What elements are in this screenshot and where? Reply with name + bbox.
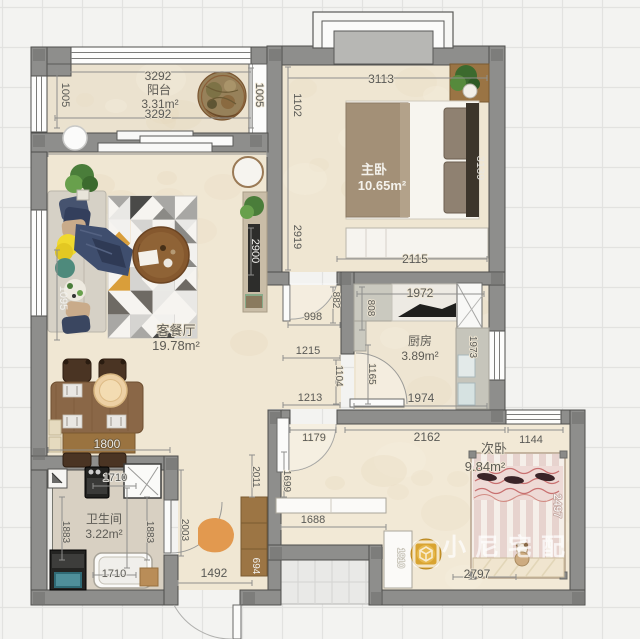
svg-text:客餐厅: 客餐厅	[156, 323, 195, 338]
svg-text:2115: 2115	[402, 252, 428, 266]
svg-text:1973: 1973	[467, 336, 478, 359]
svg-text:1699: 1699	[281, 470, 292, 493]
svg-text:1710: 1710	[102, 568, 126, 580]
svg-text:2797: 2797	[464, 567, 491, 581]
svg-text:1165: 1165	[366, 363, 377, 385]
svg-text:1005: 1005	[253, 83, 265, 107]
svg-text:9.84m²: 9.84m²	[465, 459, 506, 474]
svg-text:1215: 1215	[296, 345, 320, 357]
svg-text:厨房: 厨房	[408, 333, 432, 348]
svg-text:主卧: 主卧	[361, 162, 387, 177]
svg-text:1095: 1095	[57, 286, 69, 310]
svg-text:1710: 1710	[103, 472, 127, 484]
svg-text:1005: 1005	[59, 83, 71, 107]
svg-text:1883: 1883	[144, 521, 155, 544]
svg-text:1492: 1492	[201, 566, 228, 580]
svg-text:19.78m²: 19.78m²	[152, 338, 200, 353]
svg-text:小尼宅配: 小尼宅配	[442, 533, 574, 561]
svg-text:2497: 2497	[551, 494, 563, 518]
svg-text:1102: 1102	[291, 93, 303, 117]
svg-text:1144: 1144	[519, 434, 543, 446]
svg-text:1972: 1972	[407, 286, 434, 300]
svg-text:2003: 2003	[179, 519, 190, 542]
svg-text:1213: 1213	[298, 392, 322, 404]
svg-text:808: 808	[365, 300, 376, 317]
svg-text:1688: 1688	[301, 514, 325, 526]
svg-text:1104: 1104	[333, 365, 344, 387]
svg-text:998: 998	[304, 311, 322, 323]
svg-text:2162: 2162	[414, 430, 441, 444]
svg-text:1974: 1974	[408, 391, 435, 405]
svg-text:1810: 1810	[396, 548, 406, 568]
svg-text:次卧: 次卧	[481, 441, 507, 456]
svg-text:694: 694	[250, 558, 261, 575]
svg-text:3.89m²: 3.89m²	[401, 349, 438, 363]
svg-text:阳台: 阳台	[147, 82, 171, 97]
svg-text:882: 882	[330, 292, 341, 309]
svg-text:2900: 2900	[249, 239, 261, 263]
svg-text:1800: 1800	[94, 437, 121, 451]
svg-text:3292: 3292	[145, 107, 172, 121]
svg-text:3292: 3292	[145, 69, 172, 83]
svg-text:10.65m²: 10.65m²	[358, 178, 407, 193]
svg-text:卫生间: 卫生间	[86, 512, 122, 526]
svg-text:1883: 1883	[60, 521, 71, 544]
svg-text:2919: 2919	[291, 225, 303, 249]
svg-text:3139: 3139	[474, 156, 486, 180]
svg-text:1179: 1179	[302, 432, 326, 444]
svg-text:2011: 2011	[250, 466, 261, 488]
svg-text:3113: 3113	[368, 72, 394, 86]
svg-text:3.22m²: 3.22m²	[85, 527, 122, 541]
